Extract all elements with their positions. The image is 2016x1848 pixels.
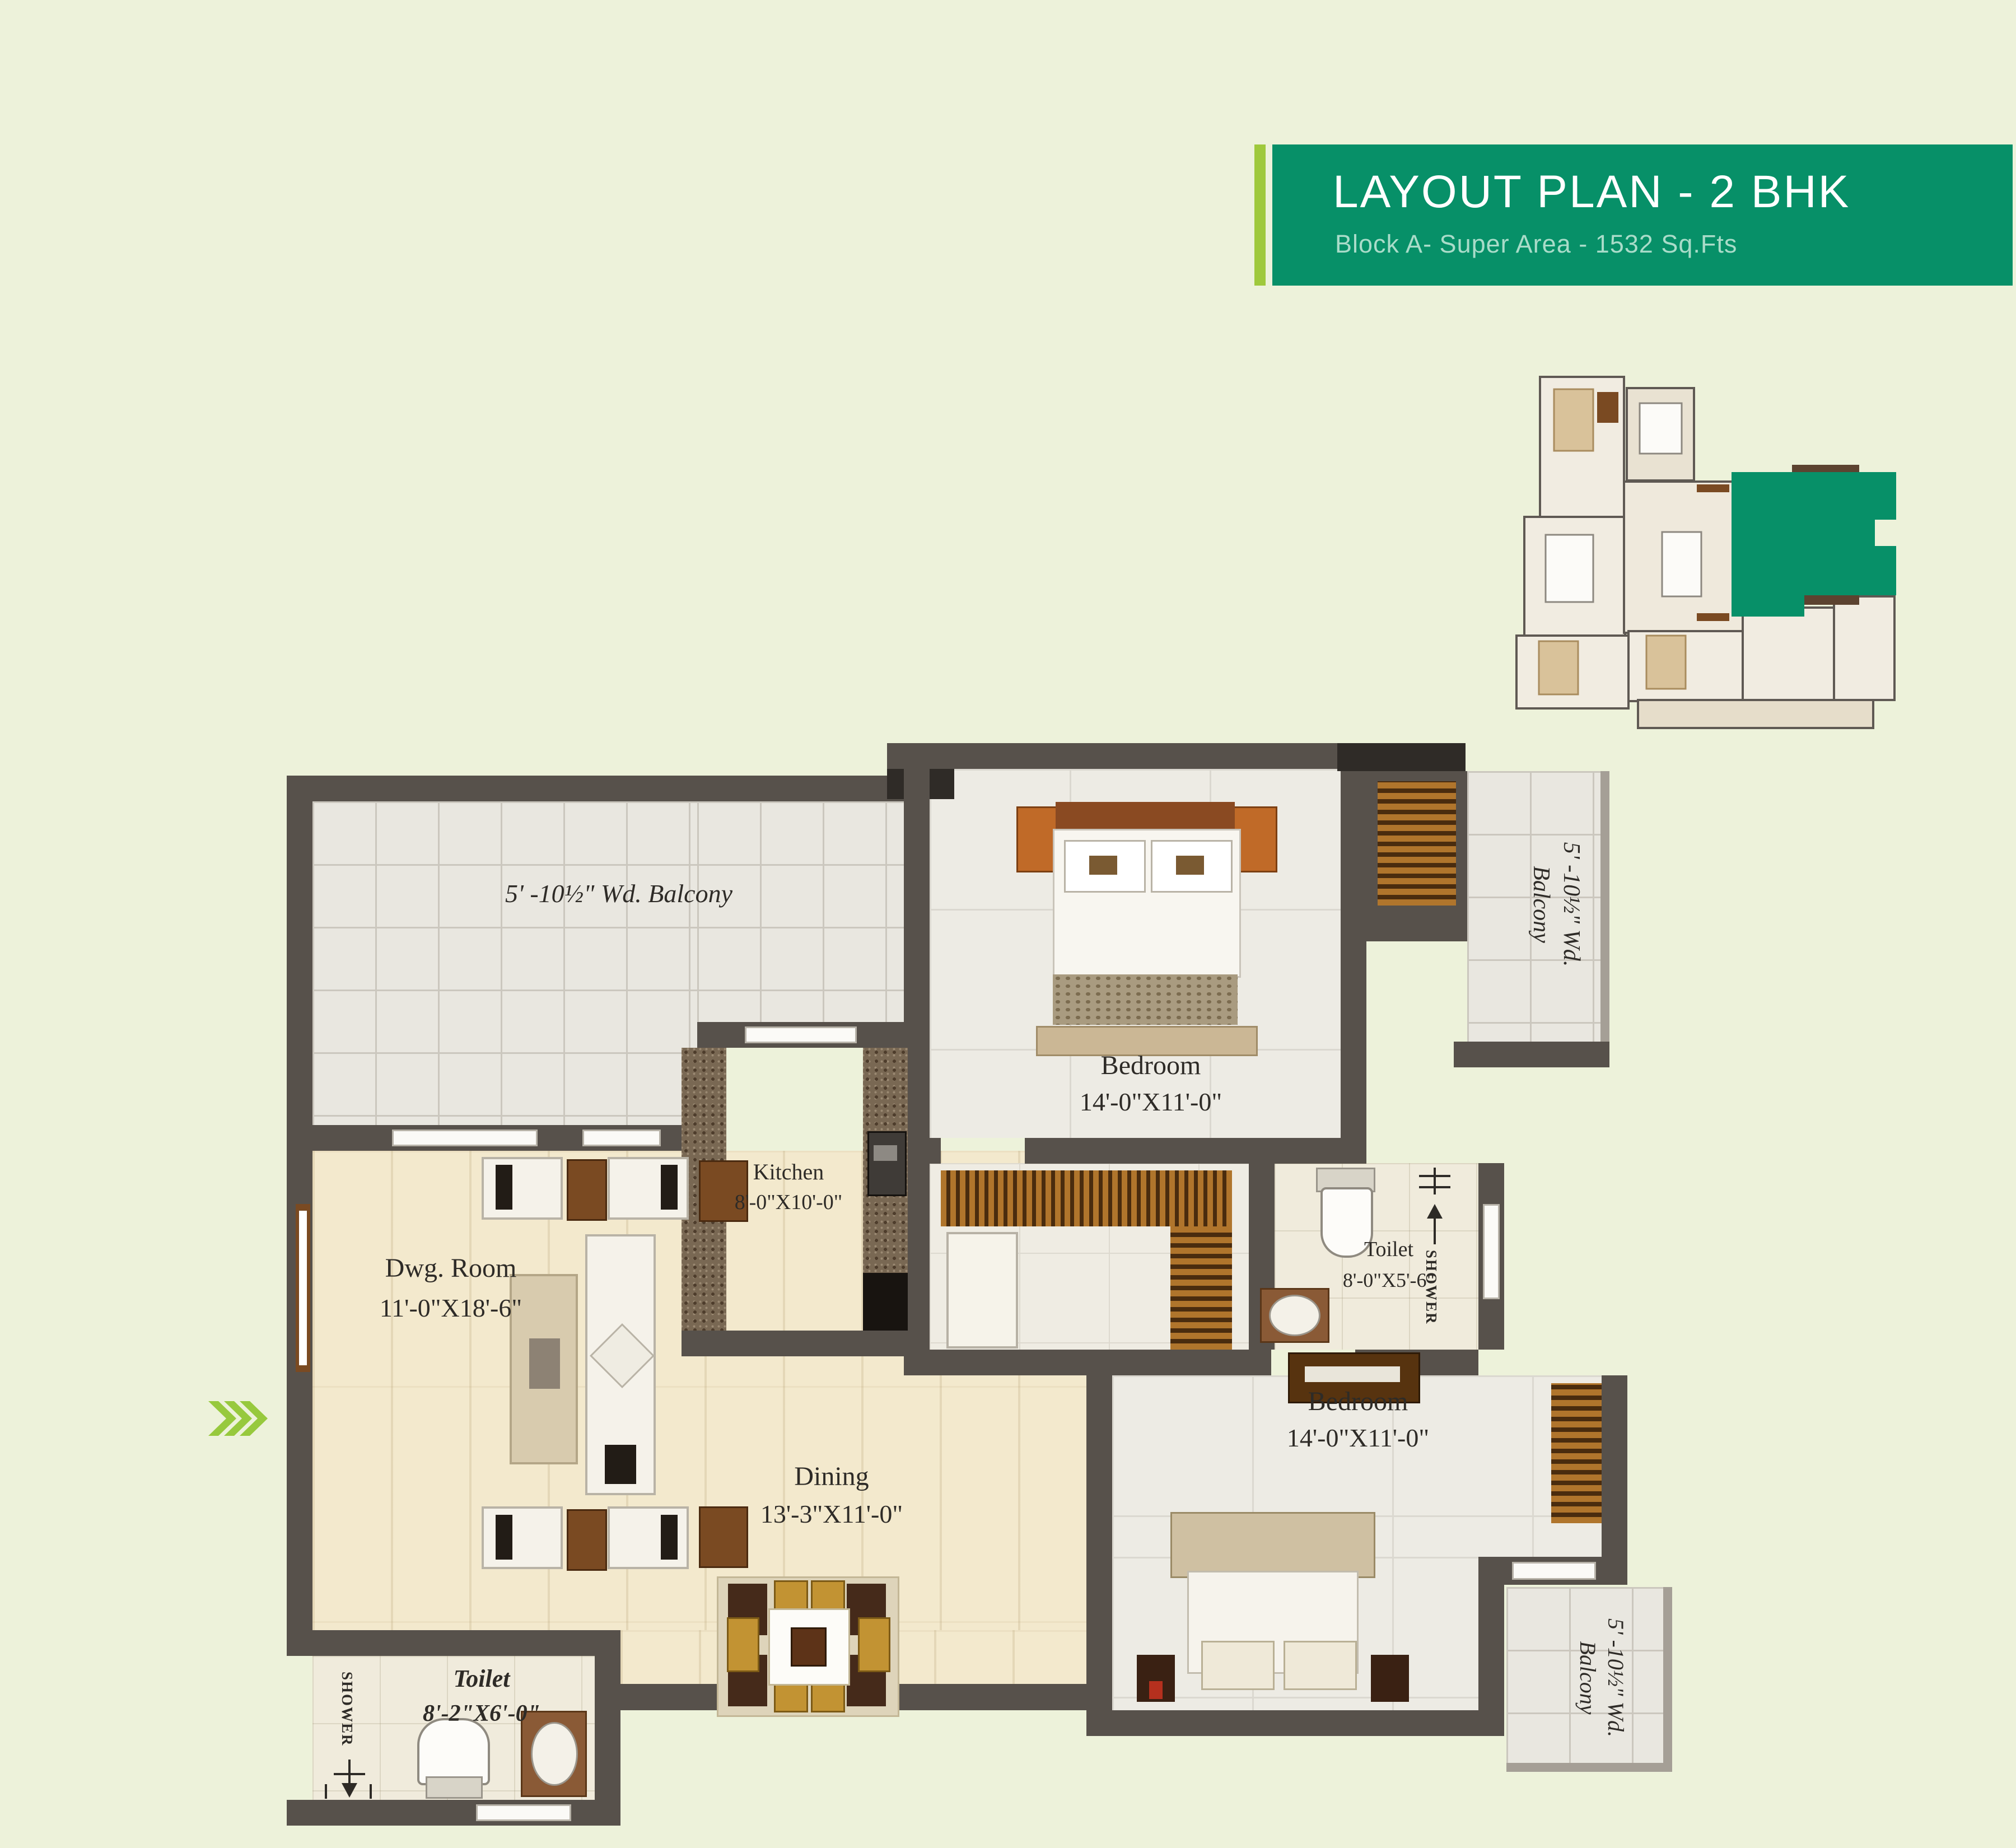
stove-burner: [874, 1145, 897, 1161]
balcony-top-label: 5' -10½" Wd. Balcony: [426, 880, 812, 907]
key-plan: [1512, 372, 1898, 742]
balcony-railing: [1600, 771, 1609, 1042]
page-title: LAYOUT PLAN - 2 BHK: [1333, 166, 1850, 218]
washbasin-icon: [1269, 1295, 1320, 1336]
sofa-pillow: [605, 1445, 636, 1484]
bed-headboard: [1170, 1512, 1375, 1578]
armchair-cushion: [496, 1165, 512, 1210]
armchair-icon: [482, 1506, 563, 1569]
dining-label: Dining: [700, 1463, 963, 1491]
balcony-top-floor: [312, 801, 697, 1125]
bedroom1-label: Bedroom: [1019, 1052, 1282, 1080]
tap-icon: [325, 1784, 327, 1799]
stove-icon: [867, 1131, 907, 1196]
balcony-top-floor-right: [697, 801, 904, 1022]
brochure-page: LAYOUT PLAN - 2 BHK Block A- Super Area …: [0, 0, 2016, 1848]
balcony-right-line1: 5' -10½" Wd.: [1559, 776, 1584, 1033]
wall: [1366, 917, 1467, 941]
header-banner: LAYOUT PLAN - 2 BHK Block A- Super Area …: [1272, 144, 2013, 286]
wall: [930, 1138, 941, 1164]
toilet1-label: Toilet: [1305, 1239, 1473, 1261]
wardrobe-icon: [1551, 1383, 1602, 1523]
balcony-bottom-line2: Balcony: [1576, 1555, 1599, 1801]
kitchen-dims: 8'-0"X10'-0": [710, 1192, 867, 1214]
shower-label: SHOWER: [338, 1672, 356, 1756]
chevrons-right-icon: [208, 1399, 270, 1438]
pillow-accent: [1089, 856, 1117, 875]
balcony-railing: [1663, 1587, 1672, 1767]
wardrobe-icon: [941, 1170, 1232, 1226]
window: [582, 1130, 661, 1146]
shower-head-icon: [1419, 1175, 1450, 1177]
bedroom1-dims: 14'-0"X11'-0": [1019, 1089, 1282, 1116]
wall: [1025, 1138, 1366, 1164]
pillow: [1201, 1641, 1275, 1690]
table-centerpiece: [791, 1627, 827, 1667]
bedside-table-icon: [1371, 1655, 1409, 1702]
tap-icon: [370, 1784, 372, 1799]
wall: [1602, 1375, 1627, 1557]
wall: [1454, 1042, 1609, 1067]
pillow: [1284, 1641, 1357, 1690]
bed-headboard: [1056, 802, 1235, 833]
side-table-icon: [567, 1509, 607, 1571]
arrow-stem: [348, 1760, 351, 1784]
decor-accent: [1149, 1681, 1163, 1699]
side-table-icon: [567, 1159, 607, 1221]
dwg-room-label: Dwg. Room: [330, 1254, 571, 1282]
bedroom2-dims: 14'-0"X11'-0": [1226, 1425, 1490, 1452]
wall: [1086, 1375, 1112, 1736]
key-plan-highlight-unit: [1732, 472, 1896, 617]
wardrobe-icon: [1170, 1226, 1232, 1350]
dresser-icon: [946, 1232, 1018, 1348]
header-accent-bar: [1254, 144, 1266, 286]
toilet2-dims: 8'-2"X6'-0": [392, 1701, 571, 1726]
toilet1-dims: 8'-0"X5'-6": [1305, 1270, 1473, 1291]
wall: [287, 776, 904, 801]
balcony-bottom-line1: 5' -10½" Wd.: [1604, 1555, 1627, 1801]
bedroom2-label: Bedroom: [1226, 1388, 1490, 1416]
window: [392, 1130, 538, 1146]
bed-blanket: [1053, 974, 1238, 1025]
armchair-icon: [482, 1157, 563, 1220]
tap-icon: [334, 1773, 365, 1775]
chair-icon: [858, 1617, 890, 1672]
wall: [887, 743, 1366, 769]
wall-column: [1337, 743, 1466, 771]
dresser-top: [1305, 1366, 1400, 1382]
washbasin-icon: [531, 1722, 578, 1786]
wc-tank: [426, 1776, 483, 1799]
dining-dims: 13'-3"X11'-0": [700, 1501, 963, 1528]
wardrobe-icon: [1378, 781, 1456, 906]
arrow-down-icon: [342, 1783, 357, 1798]
wall: [1086, 1710, 1504, 1736]
page-subtitle: Block A- Super Area - 1532 Sq.Fts: [1335, 230, 1737, 259]
door-threshold: [476, 1804, 571, 1821]
balcony-bottom-label: 5' -10½" Wd. Balcony: [1540, 1555, 1627, 1801]
window: [745, 1026, 857, 1043]
window: [1483, 1204, 1500, 1299]
armchair-cushion: [496, 1515, 512, 1560]
key-plan-graphic: [1512, 372, 1898, 742]
wall: [682, 1331, 930, 1356]
shower-head-icon: [1419, 1186, 1450, 1188]
window: [299, 1211, 307, 1365]
balcony-right-line2: Balcony: [1529, 776, 1553, 1033]
shower-head-icon: [1434, 1168, 1436, 1194]
wc-icon: [417, 1718, 490, 1785]
wall: [930, 1350, 1271, 1375]
chair-icon: [727, 1617, 759, 1672]
pillow-accent: [1176, 856, 1204, 875]
wall: [1341, 769, 1366, 1163]
balcony-right-label: 5' -10½" Wd. Balcony: [1491, 776, 1584, 1033]
kitchen-door-opening: [863, 1273, 908, 1331]
coffee-table-top: [529, 1338, 560, 1389]
dwg-room-dims: 11'-0"X18'-6": [330, 1295, 571, 1322]
armchair-cushion: [661, 1165, 678, 1210]
wall: [287, 776, 312, 1630]
wall: [287, 1630, 620, 1656]
armchair-cushion: [661, 1515, 678, 1560]
kitchen-label: Kitchen: [710, 1160, 867, 1184]
shower-label: SHOWER: [1422, 1250, 1440, 1345]
toilet2-label: Toilet: [392, 1666, 571, 1692]
